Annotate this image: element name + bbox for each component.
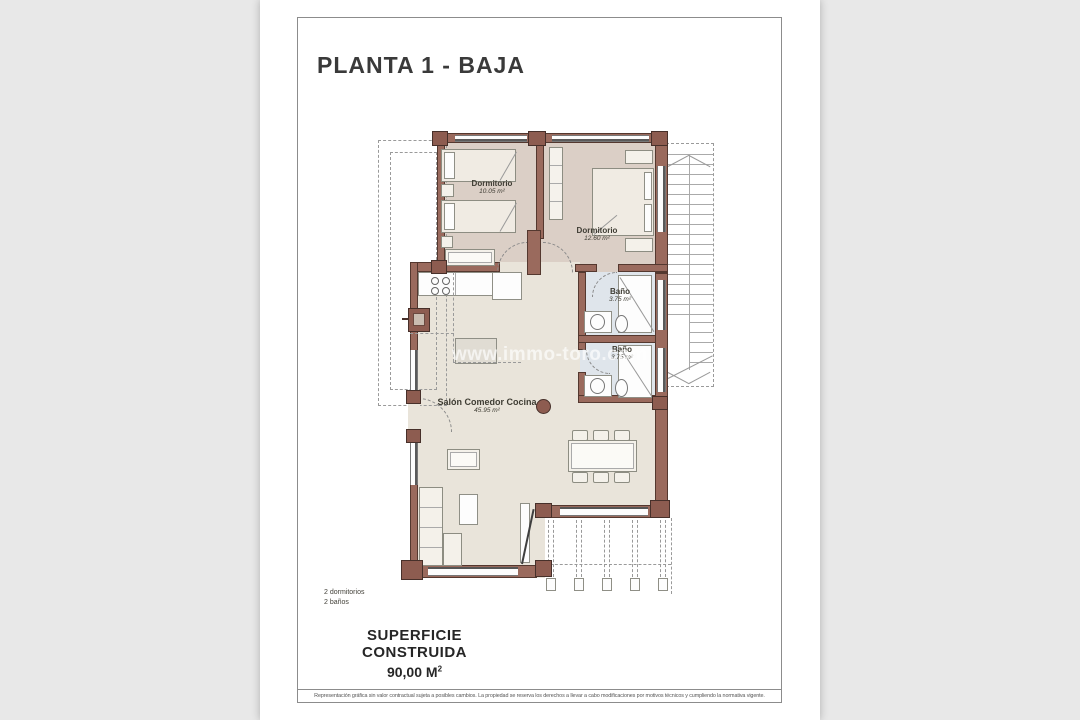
- pergola-foot: [658, 578, 668, 591]
- disclaimer: Representación gráfica sin valor contrac…: [297, 689, 782, 703]
- dining-table-inner: [571, 443, 634, 469]
- chair: [593, 472, 609, 483]
- room-area: 12.60 m²: [577, 235, 618, 242]
- burner: [431, 287, 439, 295]
- chair: [572, 430, 588, 441]
- window-bath2-east: [657, 348, 666, 392]
- wall-door-stub: [527, 230, 541, 275]
- pillar: [535, 503, 552, 518]
- kitchen-zone-dash: [410, 333, 454, 334]
- room-label-salon: Salón Comedor Cocina 45.95 m²: [437, 397, 536, 414]
- counter-division: [455, 273, 456, 295]
- surface-value: 90,00 M2: [322, 664, 507, 680]
- terrace-dash: [545, 564, 671, 565]
- column: [536, 399, 551, 414]
- pillar: [528, 131, 546, 146]
- room-area: 45.95 m²: [437, 407, 536, 414]
- pillar: [651, 131, 668, 146]
- pillow: [644, 172, 652, 200]
- summary-bathrooms: 2 baños: [324, 598, 364, 608]
- pillar: [432, 131, 448, 146]
- room-label-dormitorio-2: Dormitorio 12.60 m²: [577, 226, 618, 242]
- pillar: [431, 260, 447, 274]
- surface-value-number: 90,00 M: [387, 664, 438, 680]
- pergola-beam: [632, 520, 638, 577]
- summary-bedrooms: 2 dormitorios: [324, 588, 364, 598]
- surface-value-sup: 2: [438, 664, 442, 673]
- room-area: 10.05 m²: [472, 188, 513, 195]
- wall-hall-bath: [575, 264, 597, 272]
- nightstand: [625, 238, 653, 252]
- wardrobe: [549, 147, 563, 220]
- sofa: [419, 487, 443, 566]
- door-opening-west: [408, 404, 420, 429]
- room-name: Baño: [609, 287, 631, 296]
- pergola-foot: [602, 578, 612, 591]
- room-label-bano-1: Baño 3.75 m²: [609, 287, 631, 303]
- boiler-stub: [402, 318, 409, 320]
- watermark: www.immo-toro.com: [452, 344, 648, 366]
- screenshot-root: PLANTA 1 - BAJA: [0, 0, 1080, 720]
- pergola-foot: [630, 578, 640, 591]
- chair: [593, 430, 609, 441]
- room-name: Dormitorio: [472, 179, 513, 188]
- window-bath1-east: [657, 280, 666, 330]
- pergola-beam: [660, 520, 666, 577]
- pillar: [652, 396, 668, 410]
- burner: [442, 287, 450, 295]
- coffee-table: [459, 494, 478, 525]
- kitchen-counter-end: [492, 272, 522, 300]
- sink-basin: [590, 378, 605, 394]
- pillar: [401, 560, 423, 580]
- wall-bedroom-divider: [536, 141, 544, 239]
- pillar: [535, 560, 552, 577]
- window-living-south-left: [428, 567, 518, 576]
- pillow: [644, 204, 652, 232]
- terrace-dash: [671, 518, 672, 594]
- surface-label: SUPERFICIE CONSTRUIDA: [322, 627, 507, 661]
- staircase-treads: [667, 154, 713, 322]
- room-label-dormitorio-1: Dormitorio 10.05 m²: [472, 179, 513, 195]
- dresser-inner: [448, 252, 492, 263]
- window-living-west2: [410, 443, 418, 485]
- staircase-midline: [689, 154, 690, 370]
- chair: [572, 472, 588, 483]
- window-living-south: [560, 507, 648, 516]
- nightstand: [441, 184, 454, 197]
- pillow: [444, 152, 455, 179]
- wall-hall-bath: [618, 264, 668, 272]
- chair: [614, 472, 630, 483]
- sink-basin: [590, 314, 605, 330]
- page-title: PLANTA 1 - BAJA: [317, 52, 525, 79]
- window-bedroom1-north: [455, 135, 527, 142]
- pillow: [444, 203, 455, 230]
- sofa-chaise: [443, 533, 462, 566]
- living-floor-corridor: [545, 262, 580, 403]
- room-area: 3.75 m²: [609, 296, 631, 303]
- window-living-west1: [410, 350, 418, 392]
- burner: [431, 277, 439, 285]
- pillar: [650, 500, 670, 518]
- pergola-foot: [574, 578, 584, 591]
- toilet: [615, 315, 628, 333]
- window-bedroom2-north: [552, 135, 649, 142]
- pergola-foot: [546, 578, 556, 591]
- surface-block: SUPERFICIE CONSTRUIDA 90,00 M2: [322, 627, 507, 680]
- pergola-beam: [604, 520, 610, 577]
- nightstand: [441, 236, 453, 248]
- wall-east-lower: [655, 403, 668, 503]
- chair: [614, 430, 630, 441]
- pillar-door-jamb: [406, 390, 421, 404]
- boiler-inner: [413, 313, 425, 326]
- tv-unit-inner: [450, 452, 477, 467]
- room-name: Salón Comedor Cocina: [437, 397, 536, 407]
- room-name: Dormitorio: [577, 226, 618, 235]
- pergola-beam: [576, 520, 582, 577]
- burner: [442, 277, 450, 285]
- nightstand: [625, 150, 653, 164]
- toilet: [615, 379, 628, 397]
- summary-block: 2 dormitorios 2 baños: [324, 588, 364, 608]
- window-bedroom2-east: [657, 166, 666, 232]
- pillar-door-jamb: [406, 429, 421, 443]
